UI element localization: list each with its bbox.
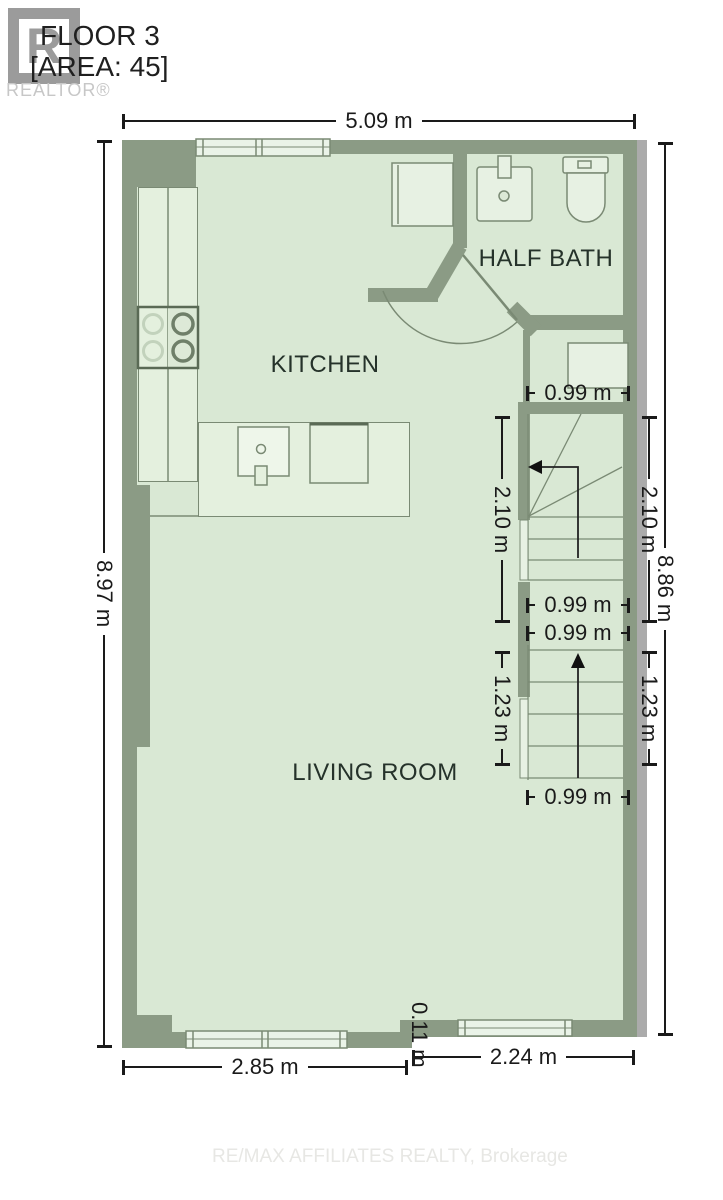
floor-area: [AREA: 45] — [30, 51, 169, 83]
dim-stair-lower-left: 1.23 m — [490, 651, 514, 766]
dim-closet-width: 0.99 m — [526, 380, 630, 406]
wall-left-thick — [122, 485, 150, 747]
wall-bottom-right — [400, 1020, 637, 1037]
brokerage-watermark: RE/MAX AFFILIATES REALTY, Brokerage — [212, 1146, 518, 1168]
dim-left-height: 8.97 m — [92, 140, 116, 1048]
dim-stair-bottom-width: 0.99 m — [526, 784, 630, 810]
floorplan-page: R FLOOR 3 [AREA: 45] REALTOR® — [0, 0, 723, 1200]
kitchen-counter-bottom — [198, 422, 410, 517]
floor-title: FLOOR 3 — [40, 20, 160, 52]
wall-below-half-bath — [530, 315, 637, 330]
room-label-kitchen: KITCHEN — [240, 351, 410, 379]
room-label-living-room: LIVING ROOM — [285, 759, 465, 787]
dim-bottom-right-label: 2.24 m — [481, 1046, 566, 1068]
wall-bottom-left — [122, 1032, 412, 1048]
dim-stair-lower-right: 1.23 m — [637, 651, 661, 766]
dim-stair-mid-upper: 0.99 m — [526, 592, 630, 618]
dim-left-height-label: 8.97 m — [93, 553, 115, 634]
dim-stair-upper-left-label: 2.10 m — [491, 479, 513, 560]
dim-top-width: 5.09 m — [122, 108, 636, 134]
dim-wall-offset: 0.11 m — [406, 1002, 432, 1068]
kitchen-counter-left — [138, 187, 198, 482]
dim-stair-bottom-label: 0.99 m — [535, 786, 620, 808]
dim-bottom-left-width: 2.85 m — [122, 1054, 408, 1080]
dim-stair-mid-lower: 0.99 m — [526, 620, 630, 646]
dim-bottom-left-label: 2.85 m — [222, 1056, 307, 1078]
dim-stair-upper-right: 2.10 m — [637, 416, 661, 623]
dim-top-width-label: 5.09 m — [336, 110, 421, 132]
dim-stair-mid-lower-label: 0.99 m — [535, 622, 620, 644]
wall-bath-vertical — [453, 140, 467, 248]
dim-stair-upper-left: 2.10 m — [490, 416, 514, 623]
dim-closet-width-label: 0.99 m — [535, 382, 620, 404]
wall-stair-stub-upper — [518, 414, 530, 520]
dim-stair-lower-left-label: 1.23 m — [491, 668, 513, 749]
room-label-half-bath: HALF BATH — [466, 245, 626, 273]
wall-right — [623, 140, 637, 1037]
realtor-label: REALTOR® — [6, 80, 111, 101]
wall-top — [122, 140, 637, 154]
dim-stair-mid-upper-label: 0.99 m — [535, 594, 620, 616]
dim-bottom-right-width: 2.24 m — [412, 1044, 635, 1070]
dim-stair-upper-right-label: 2.10 m — [638, 479, 660, 560]
dim-stair-lower-right-label: 1.23 m — [638, 668, 660, 749]
